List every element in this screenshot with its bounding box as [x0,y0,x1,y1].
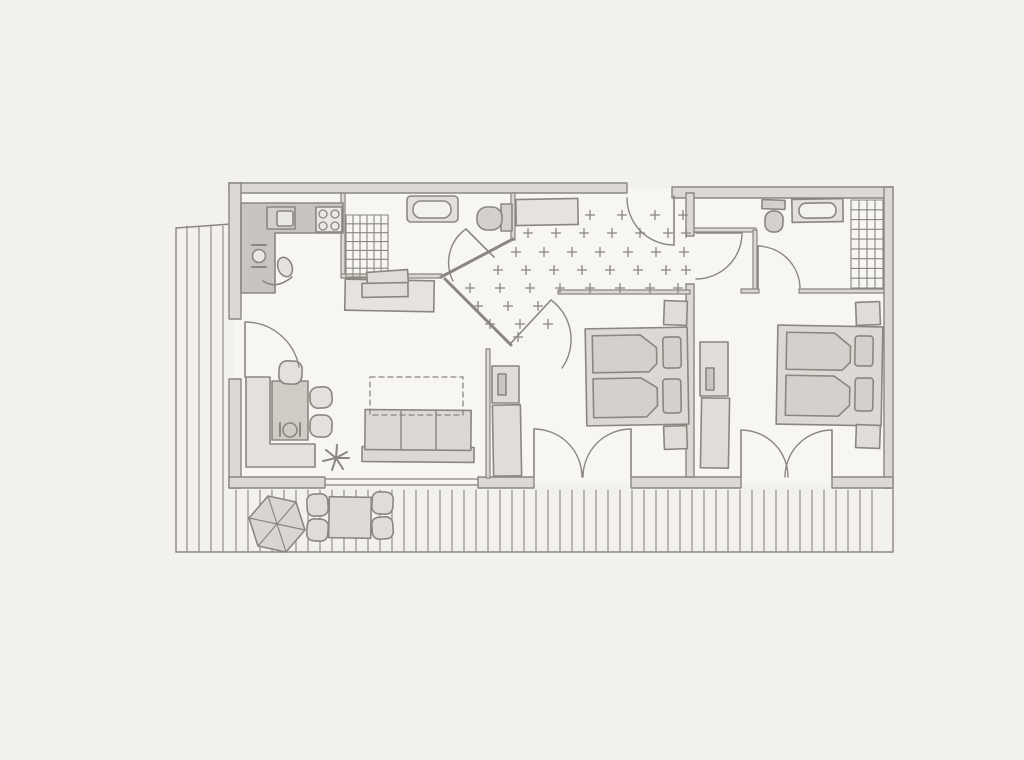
toilet-2-tank [762,200,785,210]
wall-bath2-south-b [799,289,884,293]
toilet-2-bowl [765,211,784,233]
coffee-table [272,381,308,440]
wall-bottom-a [229,477,325,488]
bed-2-pillow [855,378,874,411]
kitchen-bistro-table-top [253,250,266,263]
pouf [310,415,333,438]
wall-left-lower [229,379,241,488]
hall-dresser [516,198,578,225]
patio-chair [306,493,328,516]
wall-bath2-south-a [741,289,759,293]
wall-bedroom1-west [486,349,490,478]
wall-bedroom1-north [558,290,690,294]
patio-chair [306,518,328,541]
floor-plan-canvas [0,0,1024,760]
bed-1-mattress [593,378,658,418]
toilet-1-bowl [477,207,502,230]
nightstand [664,301,688,326]
nightstand [664,426,688,450]
wall-right [884,187,893,488]
wall-bottom-b [478,477,534,488]
wall-bath2-west [753,230,757,292]
pouf [309,386,332,408]
bed-2-mattress [786,332,851,370]
deck-planks-left [187,226,223,551]
bed-1-mattress [592,335,657,373]
bed-1-pillow [663,337,682,368]
bed-2-mattress [785,375,850,416]
wall-bottom-d [832,477,893,488]
nightstand [856,425,881,449]
nightstand [856,302,881,326]
patio-chair [371,516,393,539]
floor-plan-svg [0,0,1024,760]
sink-2-basin [799,203,836,219]
tv-1 [498,374,506,395]
tv-unit-2-bottom [700,398,729,468]
wall-top-left-unit [229,183,627,193]
sofa-cushions [365,410,471,451]
kitchen-sink-basin [277,211,293,226]
bed-1-pillow [663,379,682,413]
patio-chair [371,491,393,514]
wall-bath2-north [694,228,756,232]
wall-top-right-unit [672,187,893,198]
bed-2-pillow [855,336,874,366]
patio-table [329,497,372,539]
tv-2 [706,368,714,390]
bathtub-basin [413,201,451,218]
desk-object [362,283,408,298]
wall-bottom-c [631,477,741,488]
wall-left-upper [229,183,241,319]
tv-unit-1-bottom [492,405,521,476]
